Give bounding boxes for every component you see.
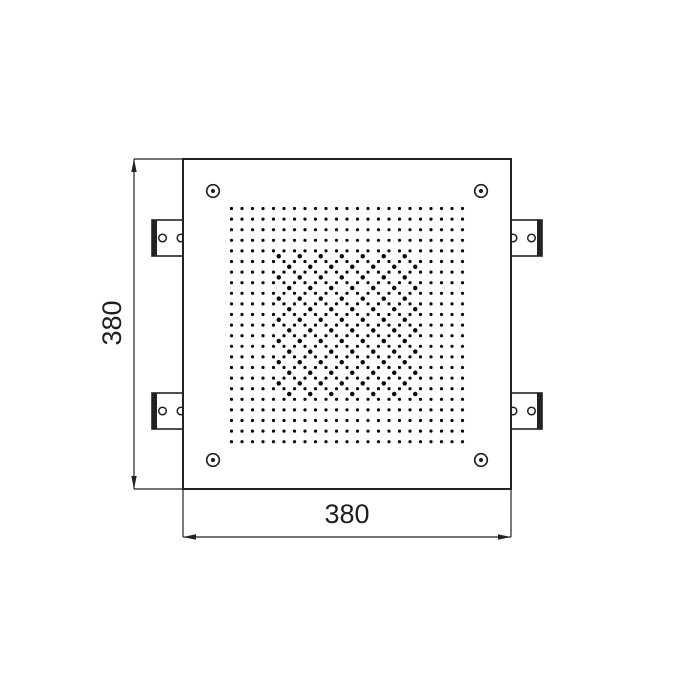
height-dimension-label: 380 bbox=[97, 300, 127, 345]
width-dimension: 380 bbox=[183, 490, 511, 540]
mounting-bracket-bottom-left bbox=[152, 393, 185, 430]
bracket-thick-edge bbox=[537, 220, 542, 257]
width-dimension-label: 380 bbox=[324, 499, 369, 529]
dimension-arrow-down-icon bbox=[131, 476, 136, 489]
bracket-thick-edge bbox=[152, 220, 157, 257]
bracket-hole bbox=[159, 407, 167, 415]
bracket-hole bbox=[528, 234, 536, 242]
mounting-bracket-top-right bbox=[509, 220, 542, 257]
drawing-canvas: 380 380 bbox=[0, 0, 700, 700]
dimension-arrow-left-icon bbox=[183, 534, 196, 539]
height-dimension: 380 bbox=[97, 159, 182, 489]
bracket-hole bbox=[159, 234, 167, 242]
bracket-thick-edge bbox=[152, 393, 157, 430]
dimension-arrow-right-icon bbox=[498, 534, 511, 539]
mounting-bracket-top-left bbox=[152, 220, 185, 257]
shower-head-technical-drawing: 380 380 bbox=[0, 0, 700, 700]
bracket-thick-edge bbox=[537, 393, 542, 430]
dimension-arrow-up-icon bbox=[131, 159, 136, 172]
bracket-hole bbox=[528, 407, 536, 415]
mounting-bracket-bottom-right bbox=[509, 393, 542, 430]
